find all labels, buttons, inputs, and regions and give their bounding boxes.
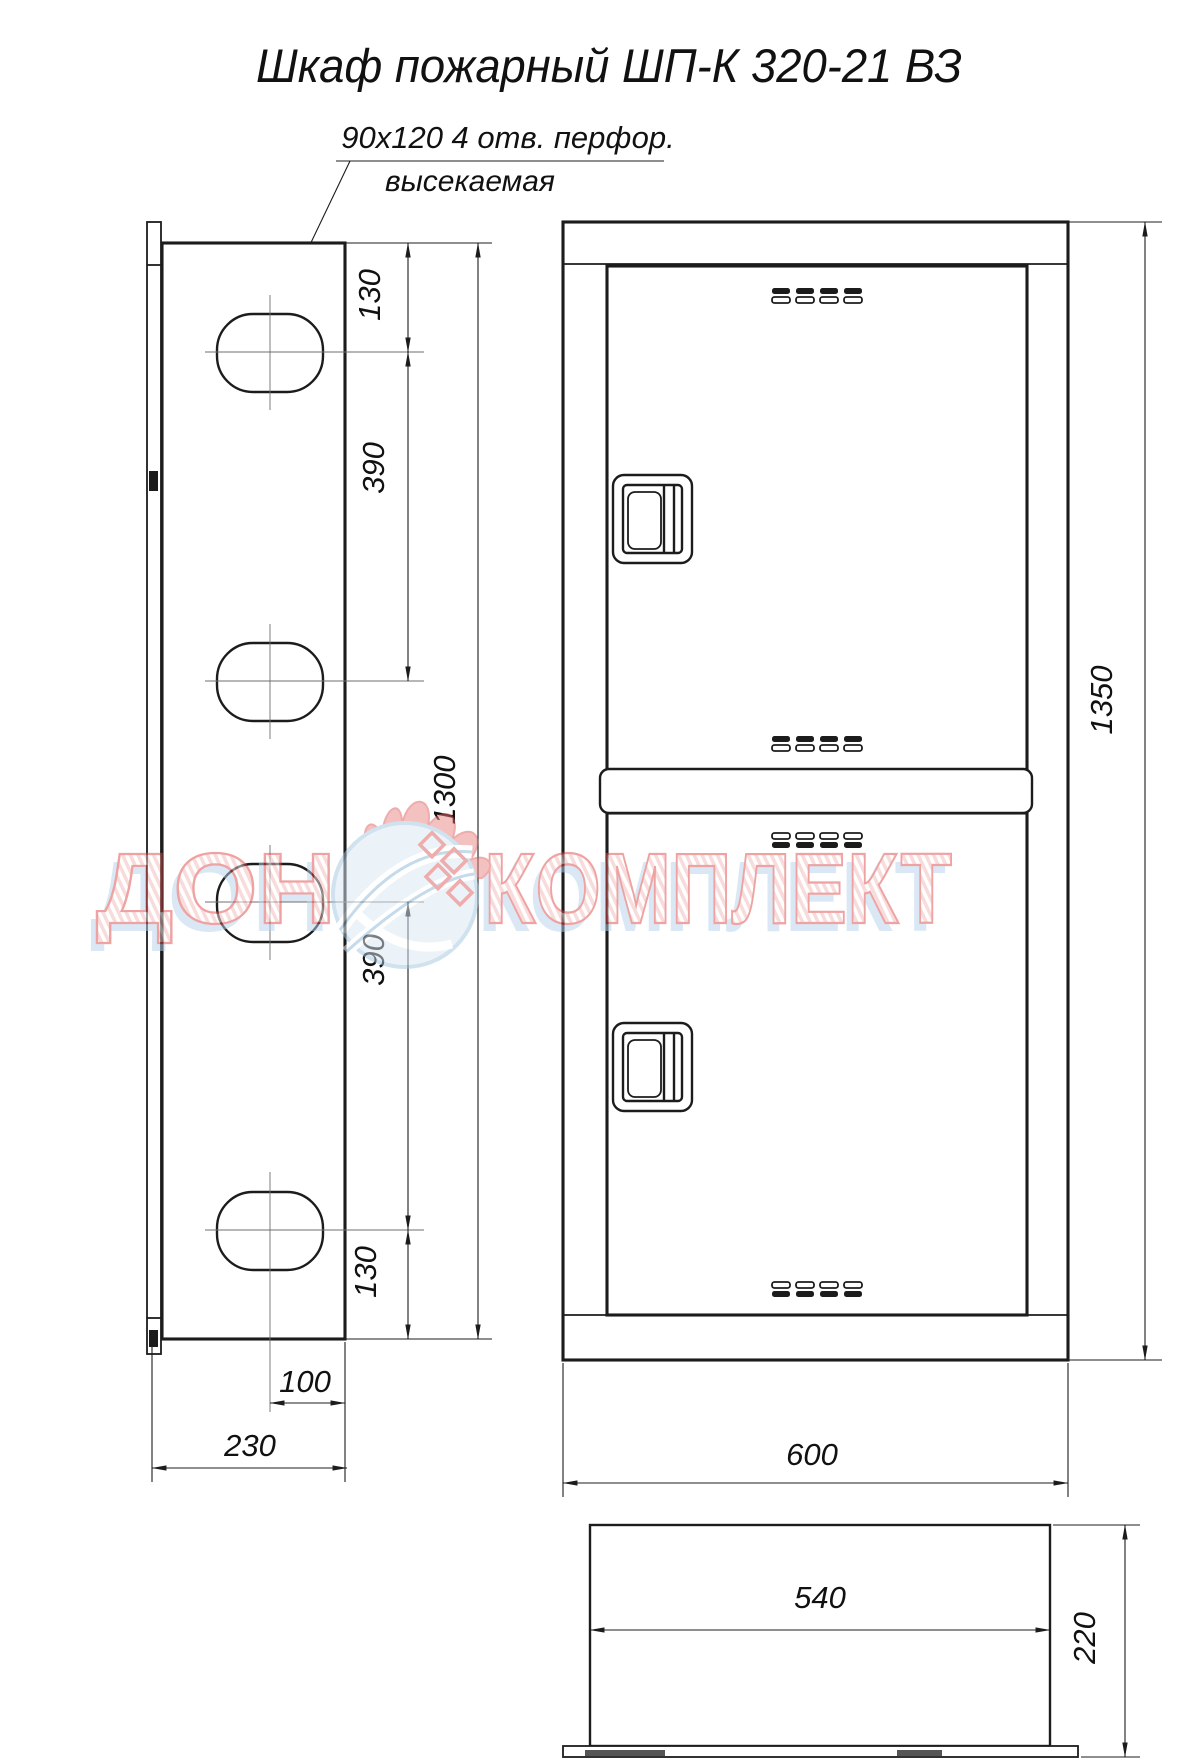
dim-130-bottom: 130: [348, 1246, 383, 1298]
upper-door-handle: [613, 475, 692, 563]
dim-1350: 1350: [1084, 666, 1119, 735]
dim-540: 540: [794, 1580, 846, 1615]
dim-390-top: 390: [356, 442, 391, 494]
top-view-foot-mark-right: [897, 1750, 942, 1756]
side-hinge-mark-top: [149, 471, 158, 491]
perforation-note-line1: 90x120 4 отв. перфор.: [341, 120, 675, 155]
dim-600: 600: [786, 1437, 838, 1472]
drawing-page: Шкаф пожарный ШП-К 320-21 ВЗ 90x120 4 от…: [0, 0, 1203, 1760]
front-middle-divider: [600, 769, 1032, 813]
dim-230: 230: [223, 1428, 276, 1463]
watermark-emblem: [333, 802, 490, 967]
side-view: [147, 222, 345, 1412]
front-view: [563, 222, 1068, 1360]
top-view: [563, 1525, 1078, 1757]
perforation-note-line2: высекаемая: [385, 165, 555, 198]
drawing-title: Шкаф пожарный ШП-К 320-21 ВЗ: [256, 39, 962, 92]
top-view-body: [590, 1525, 1050, 1746]
dim-220: 220: [1067, 1612, 1102, 1665]
watermark-word1: ДОН: [96, 833, 336, 945]
side-flange: [147, 222, 161, 1354]
watermark-word2: КОМПЛЕКТ: [484, 833, 952, 945]
dim-130-top: 130: [352, 269, 387, 321]
top-view-foot-mark-left: [585, 1750, 665, 1756]
side-hinge-mark-bottom: [149, 1330, 158, 1347]
dim-100: 100: [279, 1364, 331, 1399]
technical-drawing: Шкаф пожарный ШП-К 320-21 ВЗ 90x120 4 от…: [0, 0, 1203, 1760]
side-body: [162, 243, 345, 1339]
lower-door-handle: [613, 1023, 692, 1111]
